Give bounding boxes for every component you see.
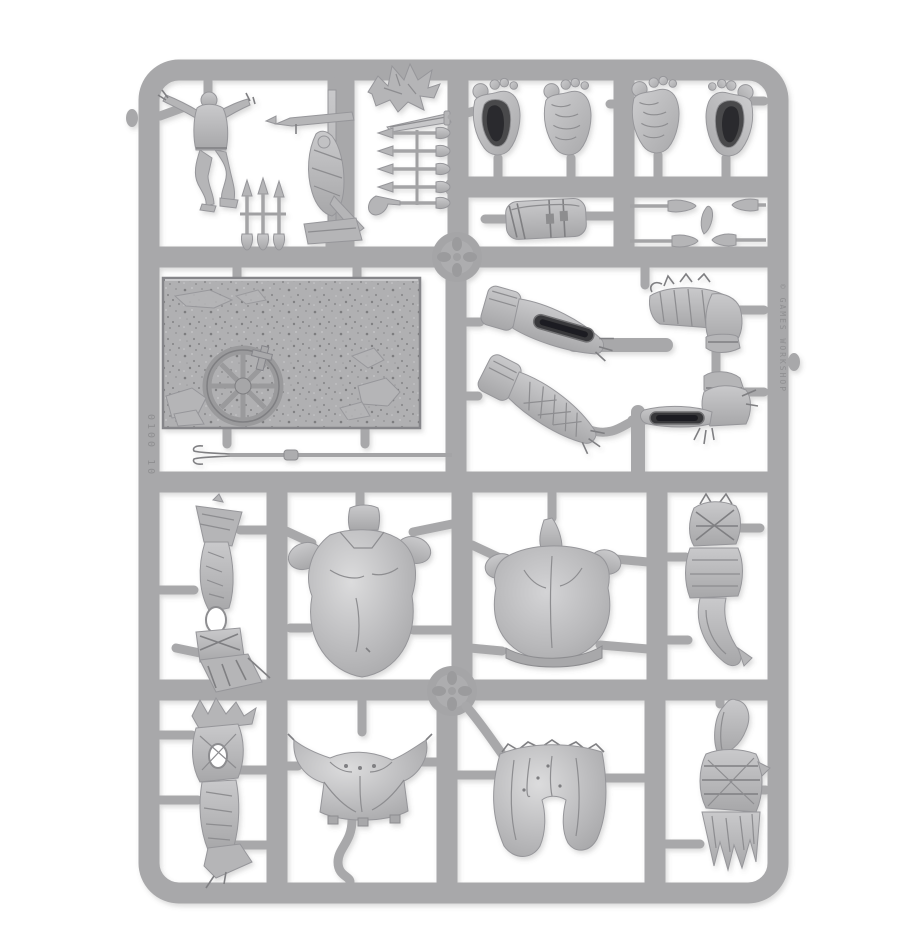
sprue-photo: 0100 10 © GAMES WORKSHOP <box>0 0 920 950</box>
part-giant-foot-outer-right <box>632 76 679 153</box>
part-loincloth <box>494 740 606 857</box>
part-bound-tail <box>686 494 753 666</box>
outer-tab-right <box>788 353 800 371</box>
part-tattered-banner <box>196 494 270 692</box>
part-forearm-wrapped <box>472 352 617 457</box>
part-spear-group <box>630 199 766 247</box>
part-bent-arm-socket <box>641 372 758 444</box>
part-base-plate <box>163 278 420 428</box>
part-arrow-rack <box>369 127 450 214</box>
part-two-prong-fork <box>193 446 452 464</box>
left-rail-marking: 0100 10 <box>145 414 156 477</box>
outer-tab-left <box>126 109 138 127</box>
right-rail-marking: © GAMES WORKSHOP <box>778 284 787 393</box>
part-horned-pelvis <box>288 734 432 826</box>
sprue-hub-top <box>432 232 482 282</box>
part-forearm-socket <box>478 284 620 362</box>
part-giant-foot-inner-left <box>473 78 520 155</box>
sprue-svg: 0100 10 © GAMES WORKSHOP <box>0 0 920 950</box>
part-giant-foot-outer-left <box>544 78 591 155</box>
part-spiked-banner <box>192 698 256 888</box>
part-standing-arrows <box>240 178 286 250</box>
part-giant-foot-inner-right <box>706 79 753 156</box>
part-wrapped-haunch <box>700 699 770 870</box>
part-wrapped-bracer <box>505 198 587 240</box>
